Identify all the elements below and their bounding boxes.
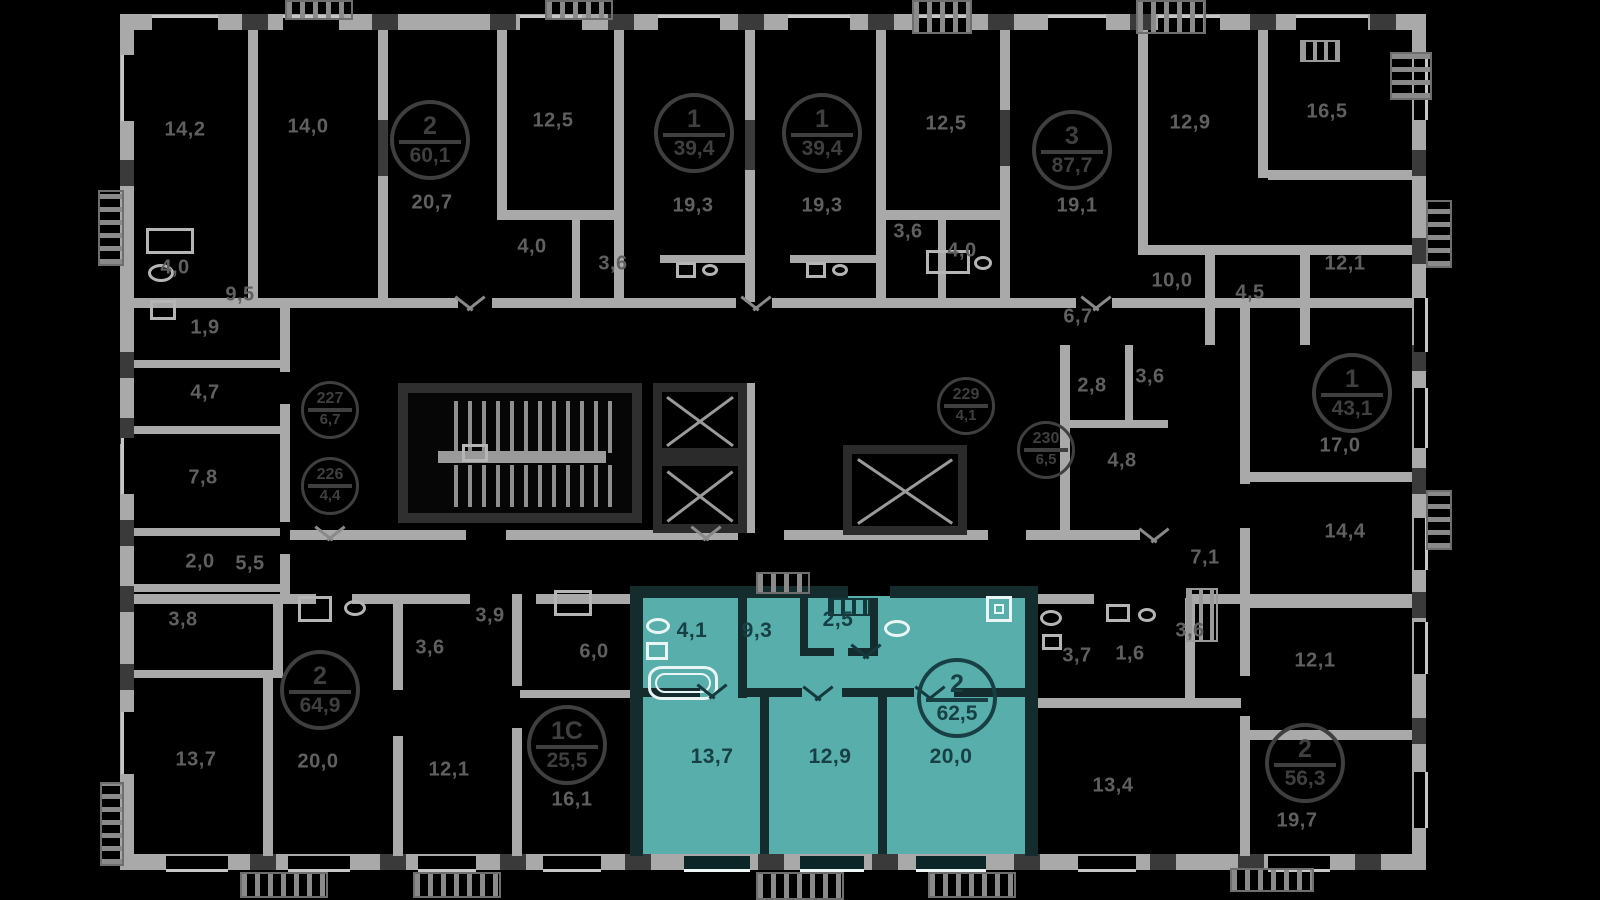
- room-area-label: 3,6: [893, 221, 922, 244]
- room-area-label: 20,7: [412, 192, 453, 215]
- room-area-label: 1,9: [190, 317, 219, 340]
- room-area-label: 12,9: [809, 745, 852, 769]
- room-area-label: 19,1: [1057, 195, 1098, 218]
- room-area-label: 5,5: [235, 553, 264, 576]
- room-area-label: 13,7: [176, 749, 217, 772]
- room-area-label: 7,8: [188, 467, 217, 490]
- room-area-label: 14,0: [288, 116, 329, 139]
- room-area-label: 19,3: [802, 195, 843, 218]
- room-area-label: 14,4: [1325, 521, 1366, 544]
- room-area-label: 3,6: [415, 637, 444, 660]
- room-area-label: 2,0: [185, 551, 214, 574]
- room-area-label: 17,0: [1320, 435, 1361, 458]
- room-area-label: 4,8: [1107, 450, 1136, 473]
- room-area-label: 3,6: [1175, 620, 1204, 643]
- room-area-label: 2,5: [823, 608, 854, 632]
- room-area-label: 4,0: [947, 240, 976, 263]
- room-area-label: 16,1: [552, 789, 593, 812]
- room-area-label: 3,6: [598, 253, 627, 276]
- room-area-label: 6,7: [1063, 306, 1092, 329]
- room-area-label: 12,5: [926, 113, 967, 136]
- room-area-label: 14,2: [165, 119, 206, 142]
- room-area-label: 4,0: [160, 257, 189, 280]
- room-area-label: 19,3: [673, 195, 714, 218]
- room-area-label: 12,1: [429, 759, 470, 782]
- room-area-label: 10,0: [1152, 270, 1193, 293]
- room-area-label: 2,8: [1077, 375, 1106, 398]
- room-area-label: 20,0: [298, 751, 339, 774]
- room-area-label: 3,7: [1062, 645, 1091, 668]
- room-area-label: 4,0: [517, 236, 546, 259]
- room-area-label: 12,1: [1325, 253, 1366, 276]
- room-area-label: 19,7: [1277, 810, 1318, 833]
- room-area-label: 16,5: [1307, 101, 1348, 124]
- room-area-label: 6,0: [579, 641, 608, 664]
- room-area-label: 9,5: [225, 284, 254, 307]
- room-area-label: 13,7: [691, 745, 734, 769]
- room-area-label: 13,4: [1093, 775, 1134, 798]
- room-area-label: 12,9: [1170, 112, 1211, 135]
- room-area-label: 4,5: [1235, 282, 1264, 305]
- room-area-label: 1,6: [1115, 643, 1144, 666]
- room-area-label: 3,9: [475, 605, 504, 628]
- room-area-label: 20,0: [930, 745, 973, 769]
- room-area-label: 3,8: [168, 609, 197, 632]
- labels-layer: 14,214,012,520,74,03,69,54,01,919,319,31…: [0, 0, 1600, 900]
- room-area-label: 12,1: [1295, 650, 1336, 673]
- room-area-label: 9,3: [742, 619, 773, 643]
- room-area-label: 12,5: [533, 110, 574, 133]
- room-area-label: 4,1: [677, 619, 708, 643]
- room-area-label: 7,1: [1190, 547, 1219, 570]
- floor-plan: 260,1139,4139,4387,7143,1264,91С25,5262,…: [0, 0, 1600, 900]
- room-area-label: 4,7: [190, 382, 219, 405]
- room-area-label: 3,6: [1135, 366, 1164, 389]
